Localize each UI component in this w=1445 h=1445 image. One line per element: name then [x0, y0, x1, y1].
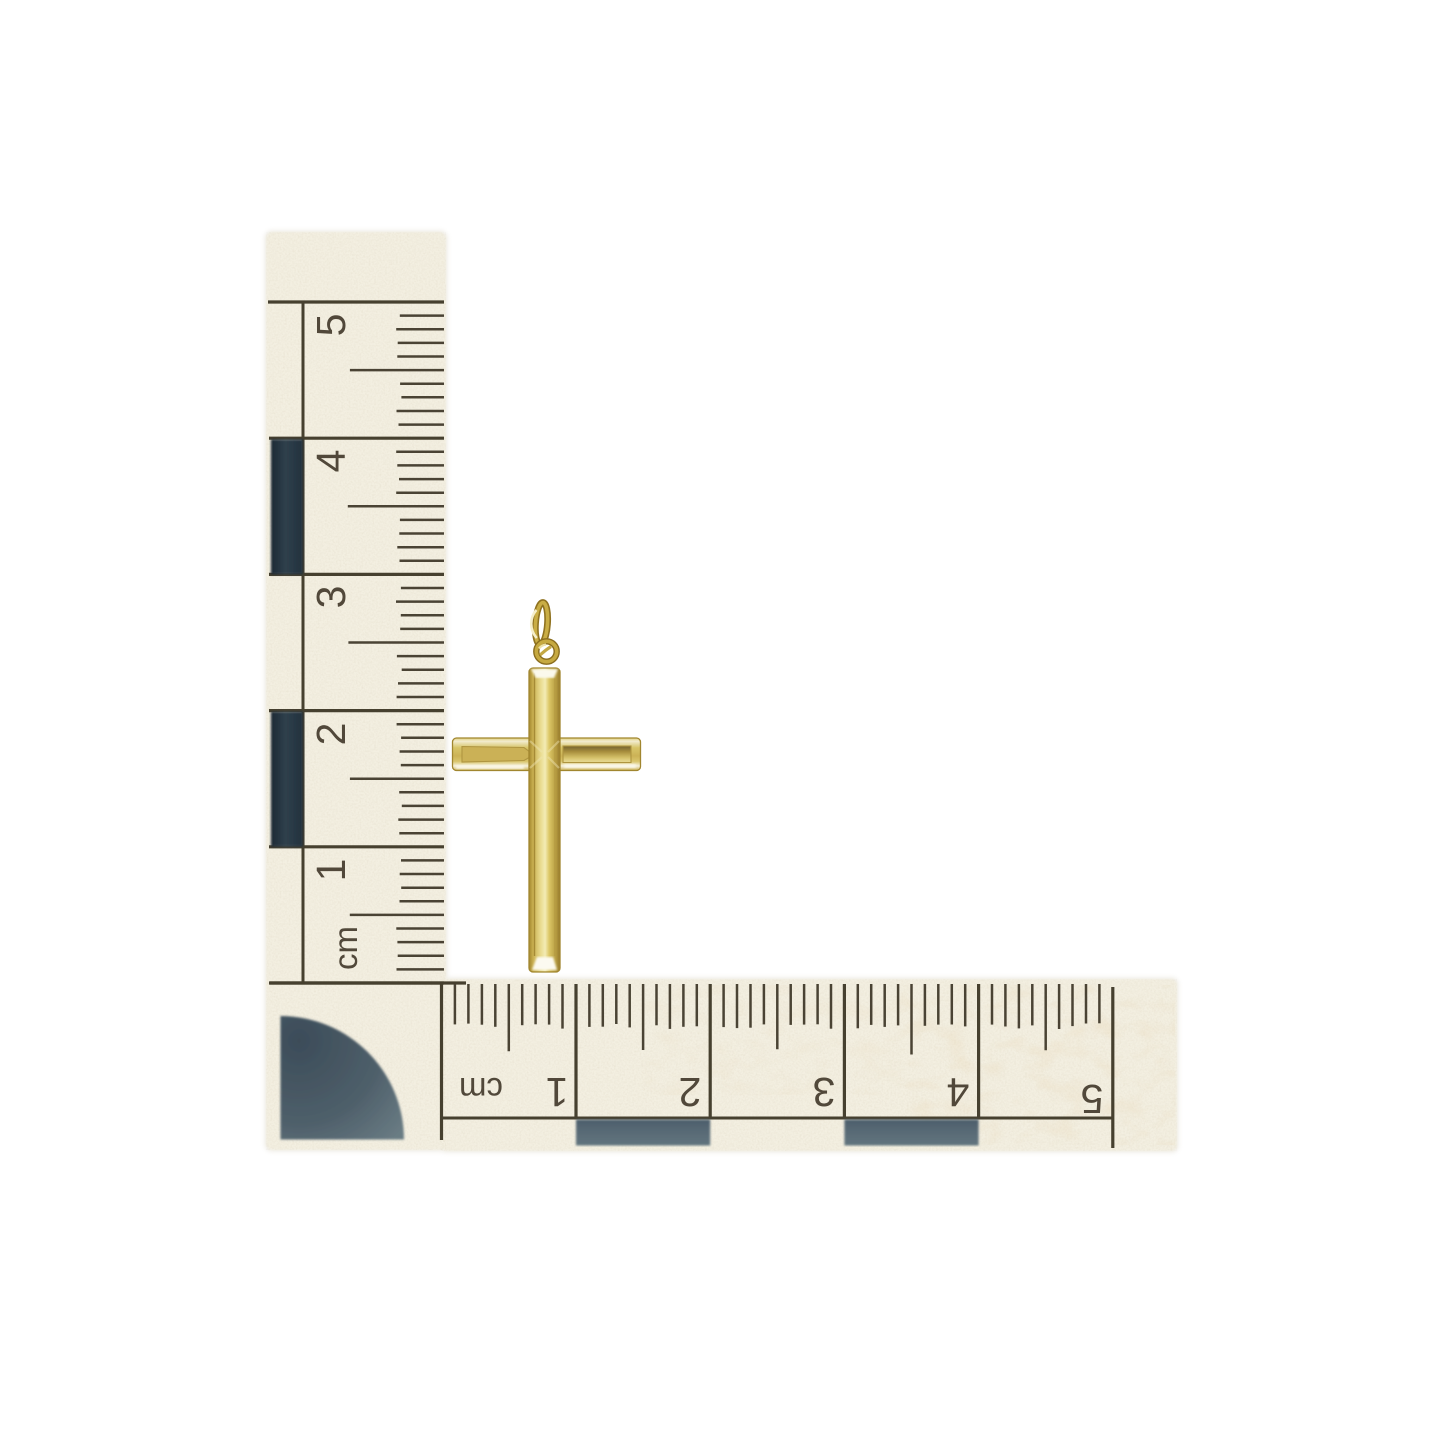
svg-text:3: 3 [813, 1069, 836, 1115]
svg-text:1: 1 [308, 859, 354, 882]
svg-text:4: 4 [308, 450, 354, 473]
svg-text:5: 5 [308, 314, 354, 337]
svg-text:3: 3 [308, 586, 354, 609]
svg-text:cm: cm [459, 1071, 503, 1108]
svg-text:2: 2 [679, 1069, 702, 1115]
svg-text:1: 1 [546, 1069, 569, 1115]
svg-text:2: 2 [308, 723, 354, 746]
svg-text:4: 4 [947, 1069, 970, 1115]
svg-text:cm: cm [327, 926, 364, 970]
svg-text:5: 5 [1081, 1076, 1104, 1122]
